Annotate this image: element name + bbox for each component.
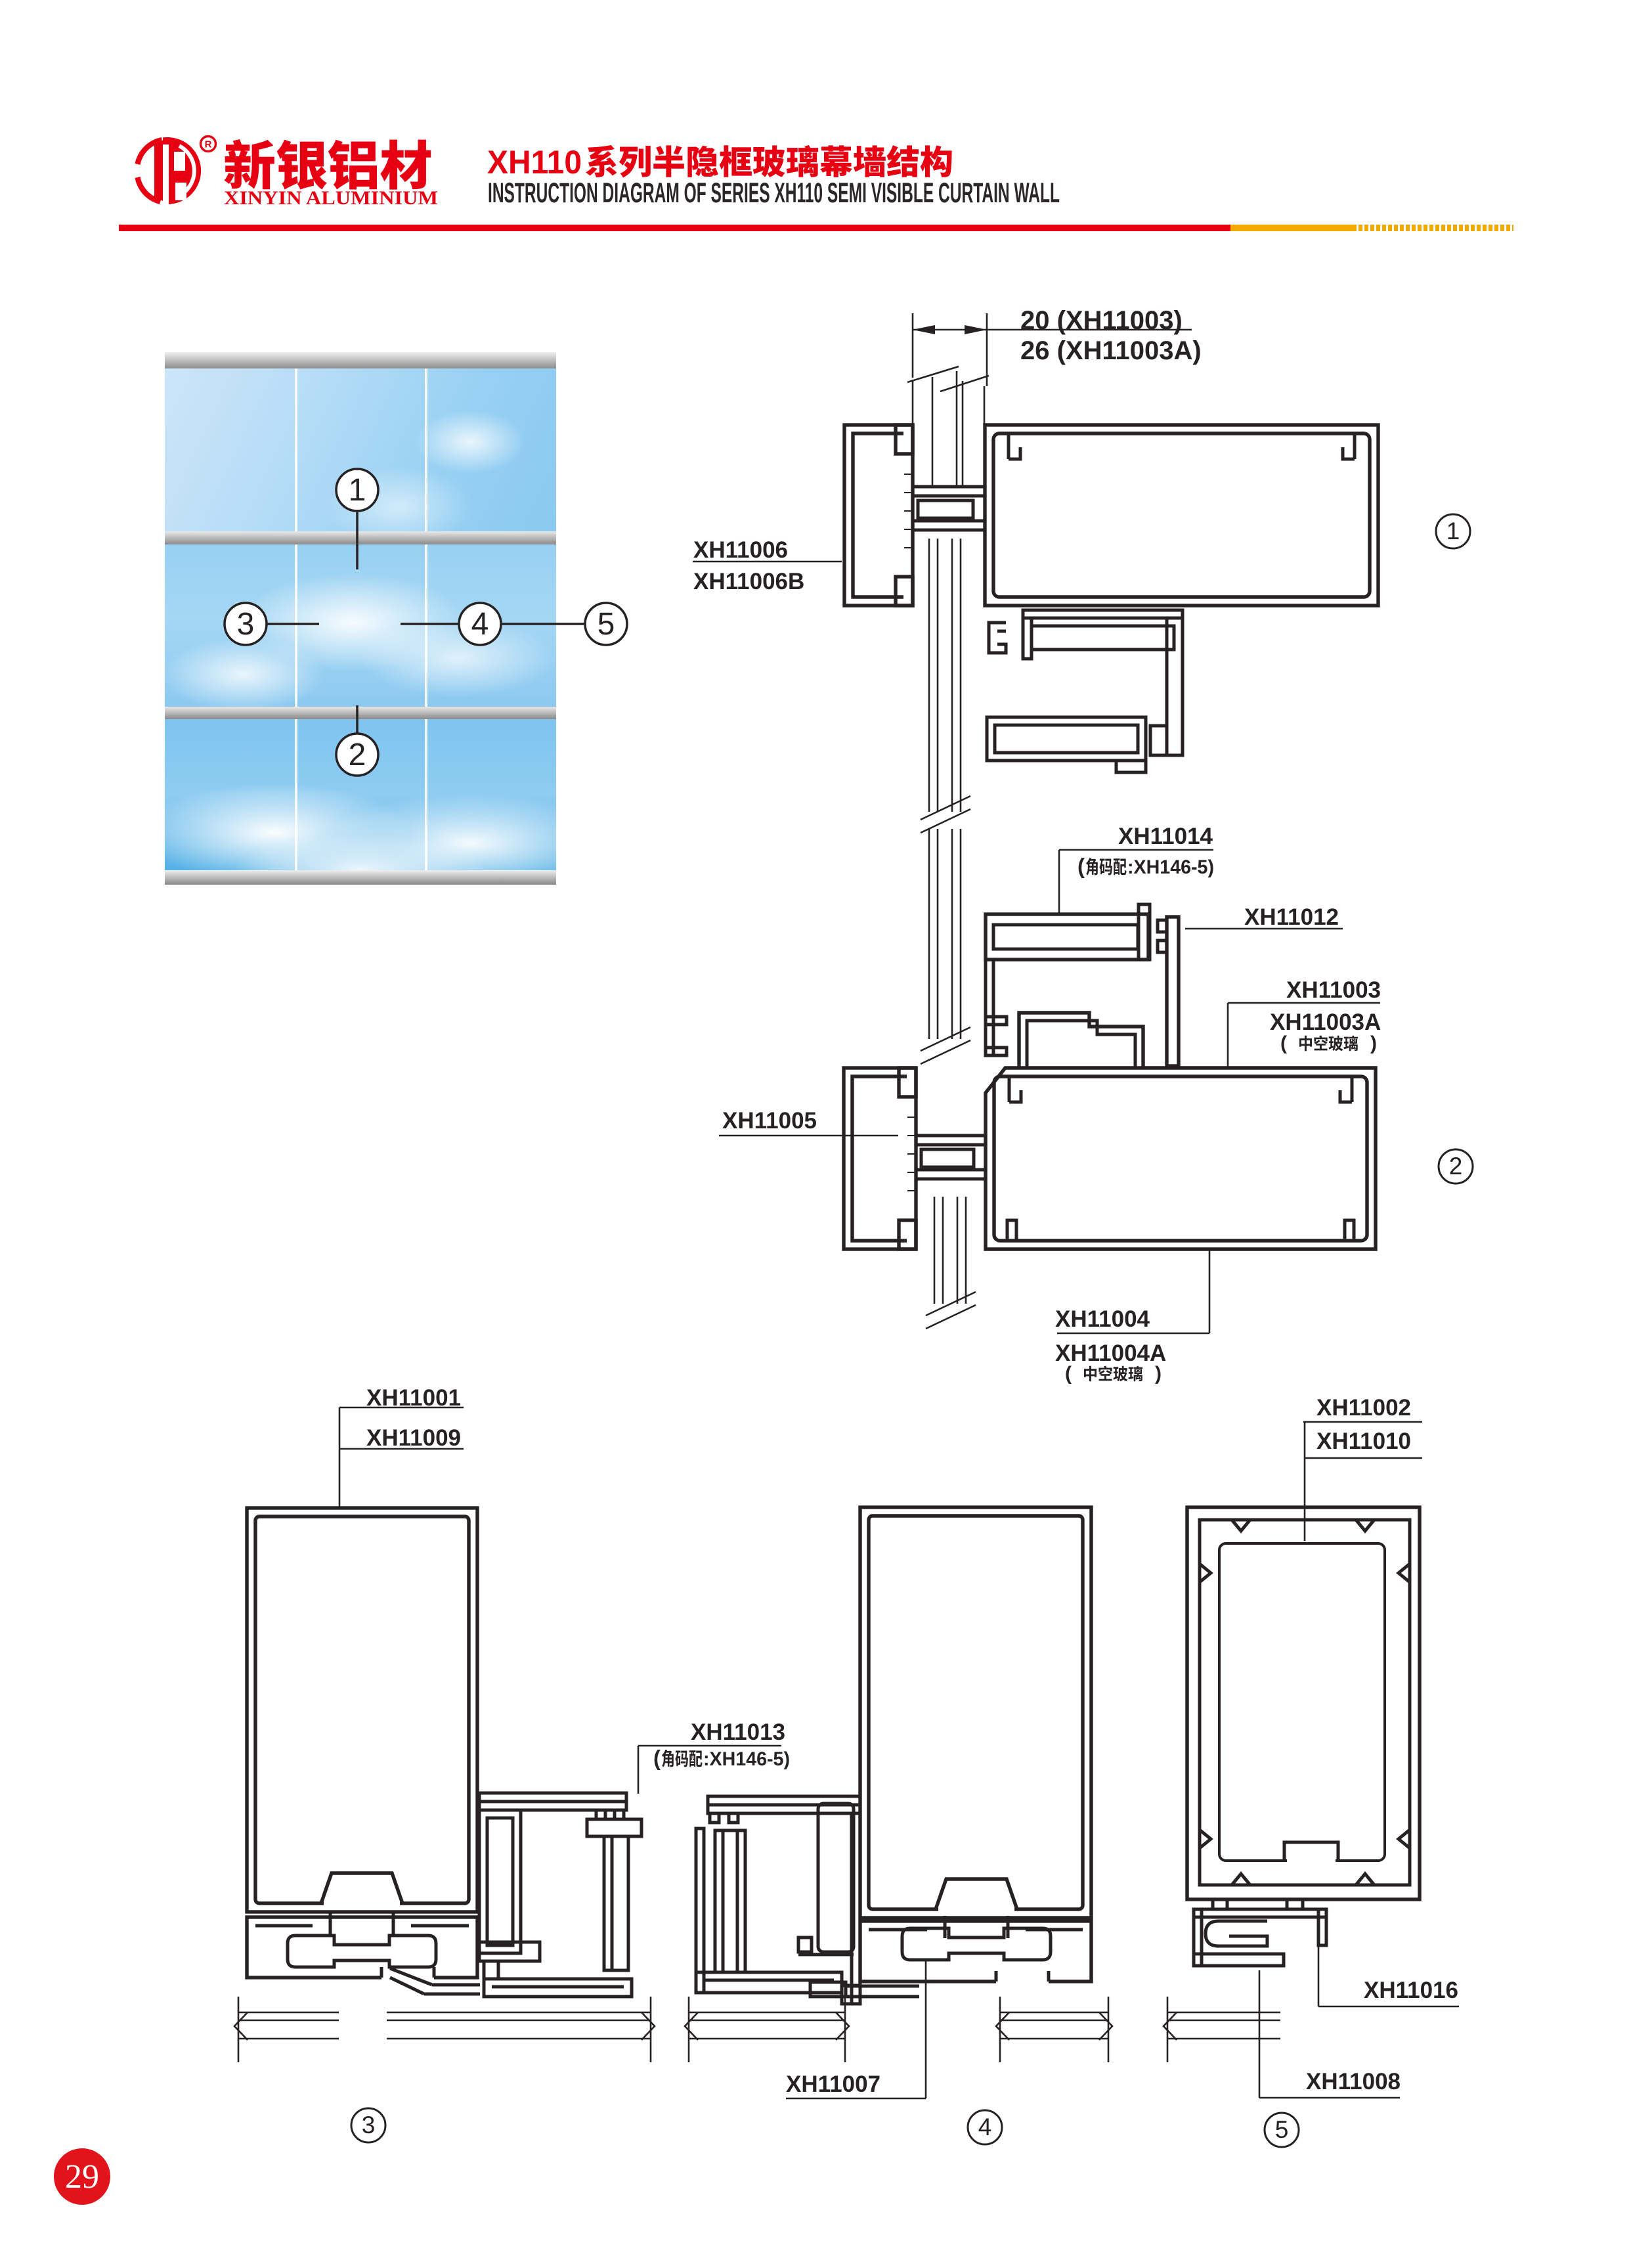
svg-text::XH146-5): :XH146-5) (1127, 856, 1214, 878)
svg-text:1: 1 (1446, 518, 1460, 544)
svg-text:4: 4 (978, 2114, 992, 2140)
svg-text:(: ( (1077, 854, 1085, 878)
svg-text:4: 4 (471, 607, 489, 642)
svg-text:3: 3 (362, 2112, 376, 2138)
svg-text:2: 2 (1449, 1153, 1463, 1180)
svg-text:1: 1 (349, 473, 366, 508)
svg-text:5: 5 (598, 607, 615, 642)
svg-text:(: ( (653, 1746, 661, 1770)
svg-text::XH146-5): :XH146-5) (703, 1748, 790, 1770)
svg-text:5: 5 (1275, 2116, 1289, 2143)
svg-text:2: 2 (349, 738, 366, 772)
svg-text:3: 3 (237, 607, 255, 642)
